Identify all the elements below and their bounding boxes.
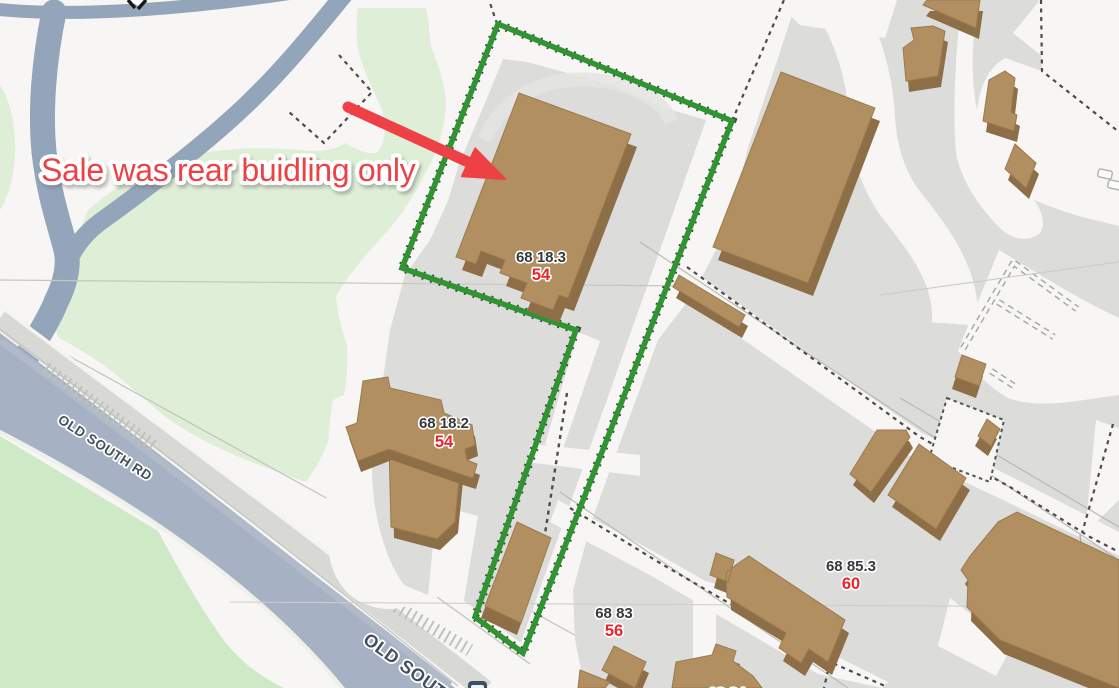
svg-text:54: 54	[435, 433, 454, 451]
svg-text:68 18.2: 68 18.2	[419, 415, 469, 432]
svg-text:60: 60	[842, 575, 860, 593]
svg-text:68 83: 68 83	[595, 605, 633, 622]
svg-text:54: 54	[532, 266, 551, 284]
svg-text:68 85.3: 68 85.3	[826, 558, 876, 575]
svg-text:56: 56	[605, 622, 623, 640]
svg-text:Sale was rear buidling only: Sale was rear buidling only	[41, 152, 416, 188]
svg-text:68 18.3: 68 18.3	[516, 249, 566, 266]
